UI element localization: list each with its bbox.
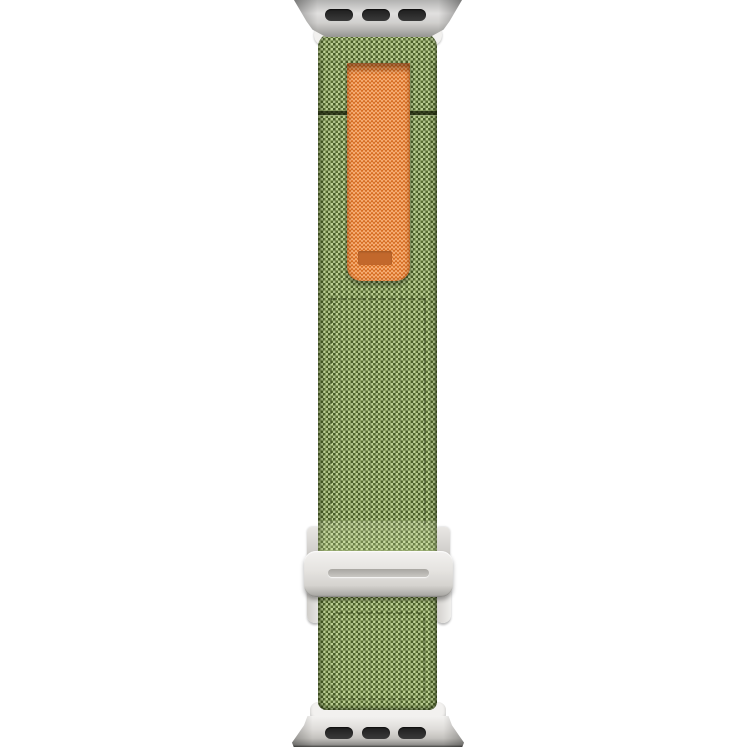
product-photo-stage — [0, 0, 750, 750]
pull-tab-label-patch — [358, 251, 392, 265]
fold-edge-shadow — [347, 63, 410, 74]
stitch-line-left — [330, 298, 332, 524]
pull-tab — [347, 60, 410, 281]
stitch-line-right — [424, 298, 426, 524]
stitch-line-horizontal — [331, 298, 425, 300]
stitch-rect-lower — [331, 612, 425, 700]
buckle-groove — [328, 569, 429, 577]
bottom-lug-adapter — [292, 716, 464, 747]
fold-edge — [318, 33, 437, 63]
band-sheen — [318, 521, 437, 552]
top-lug-adapter — [294, 0, 462, 37]
